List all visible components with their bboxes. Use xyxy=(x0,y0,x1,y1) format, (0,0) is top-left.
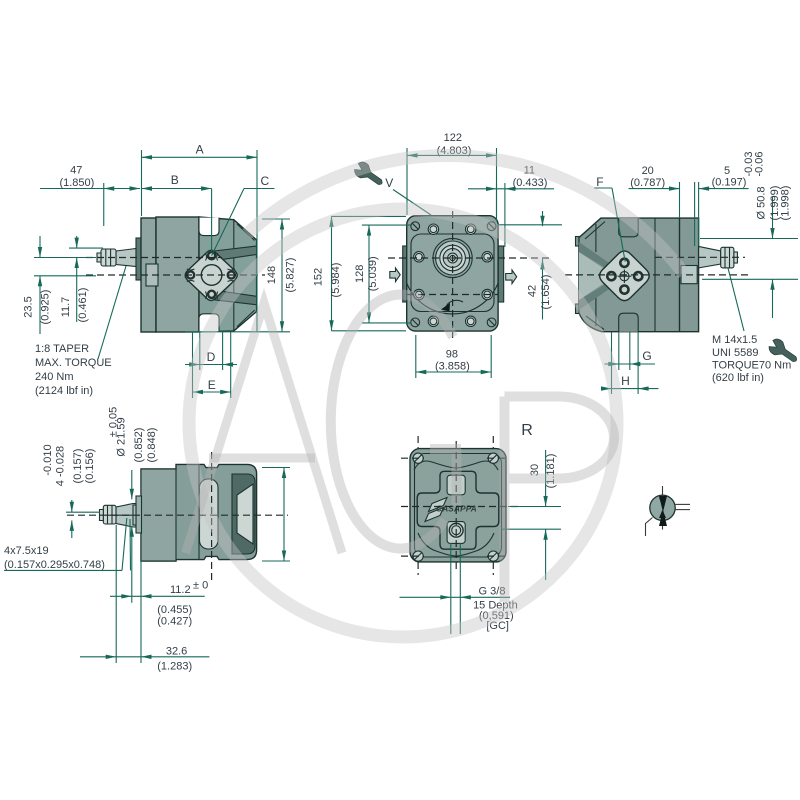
svg-text:42: 42 xyxy=(527,285,539,297)
svg-text:(0.461): (0.461) xyxy=(77,288,89,323)
svg-text:20: 20 xyxy=(642,165,654,177)
svg-text:(620 lbf in): (620 lbf in) xyxy=(712,372,764,384)
svg-text:(3.858): (3.858) xyxy=(435,361,470,373)
svg-text:E: E xyxy=(208,378,216,392)
svg-text:B: B xyxy=(171,173,179,187)
svg-text:128: 128 xyxy=(354,265,366,283)
svg-text:5: 5 xyxy=(724,165,730,177)
svg-text:Ø 50.8: Ø 50.8 xyxy=(756,186,768,219)
svg-text:-0.010: -0.010 xyxy=(42,444,54,475)
svg-text:1:8 TAPER: 1:8 TAPER xyxy=(35,343,89,355)
svg-text:(1.283): (1.283) xyxy=(157,661,192,673)
svg-text:(0.197): (0.197) xyxy=(712,177,747,189)
svg-text:11.2: 11.2 xyxy=(170,584,191,596)
svg-text:(0.852): (0.852) xyxy=(133,428,145,463)
svg-text:148: 148 xyxy=(266,266,278,284)
svg-text:98: 98 xyxy=(446,349,458,361)
svg-text:(0.427): (0.427) xyxy=(157,615,192,627)
svg-text:(0.433): (0.433) xyxy=(513,177,548,189)
svg-text:11.7: 11.7 xyxy=(60,297,72,318)
svg-text:C: C xyxy=(260,174,269,188)
svg-text:± 0: ± 0 xyxy=(193,580,208,592)
svg-text:4 -0.028: 4 -0.028 xyxy=(55,446,67,486)
svg-text:32.6: 32.6 xyxy=(166,646,187,658)
svg-text:152: 152 xyxy=(313,268,325,286)
svg-text:(0.925): (0.925) xyxy=(40,290,52,325)
svg-text:4x7.5x19: 4x7.5x19 xyxy=(4,545,49,557)
svg-text:23.5: 23.5 xyxy=(23,296,35,317)
svg-text:240 Nm: 240 Nm xyxy=(35,371,74,383)
svg-text:V: V xyxy=(385,176,393,190)
svg-text:(2124 lbf in): (2124 lbf in) xyxy=(35,385,93,397)
svg-text:H: H xyxy=(621,374,630,388)
svg-text:-0.06: -0.06 xyxy=(754,151,766,176)
svg-text:Ø 21.59: Ø 21.59 xyxy=(116,417,128,456)
svg-text:F: F xyxy=(596,175,603,189)
svg-text:UNI 5589: UNI 5589 xyxy=(712,347,758,359)
svg-text:(0.156): (0.156) xyxy=(84,449,96,484)
svg-text:(0.787): (0.787) xyxy=(630,177,665,189)
svg-text:(0.157x0.295x0.748): (0.157x0.295x0.748) xyxy=(4,559,105,571)
svg-text:(5.984): (5.984) xyxy=(330,263,342,298)
svg-text:G: G xyxy=(642,349,651,363)
svg-text:D: D xyxy=(207,350,216,364)
svg-text:(0.455): (0.455) xyxy=(157,604,192,616)
svg-text:R: R xyxy=(521,422,533,439)
svg-text:TORQUE70 Nm: TORQUE70 Nm xyxy=(712,360,791,372)
svg-text:(1.654): (1.654) xyxy=(540,275,552,310)
svg-text:M 14x1.5: M 14x1.5 xyxy=(712,334,757,346)
svg-text:(0.157): (0.157) xyxy=(72,449,84,484)
svg-text:47: 47 xyxy=(70,165,82,177)
svg-text:MAX. TORQUE: MAX. TORQUE xyxy=(35,357,112,369)
svg-text:(1.998): (1.998) xyxy=(780,186,792,221)
svg-text:(5.039): (5.039) xyxy=(367,256,379,291)
svg-text:(5.827): (5.827) xyxy=(285,258,297,293)
svg-text:(0.848): (0.848) xyxy=(146,428,158,463)
svg-text:122: 122 xyxy=(444,132,462,144)
svg-text:A: A xyxy=(196,142,204,156)
svg-text:(1.850): (1.850) xyxy=(59,177,94,189)
